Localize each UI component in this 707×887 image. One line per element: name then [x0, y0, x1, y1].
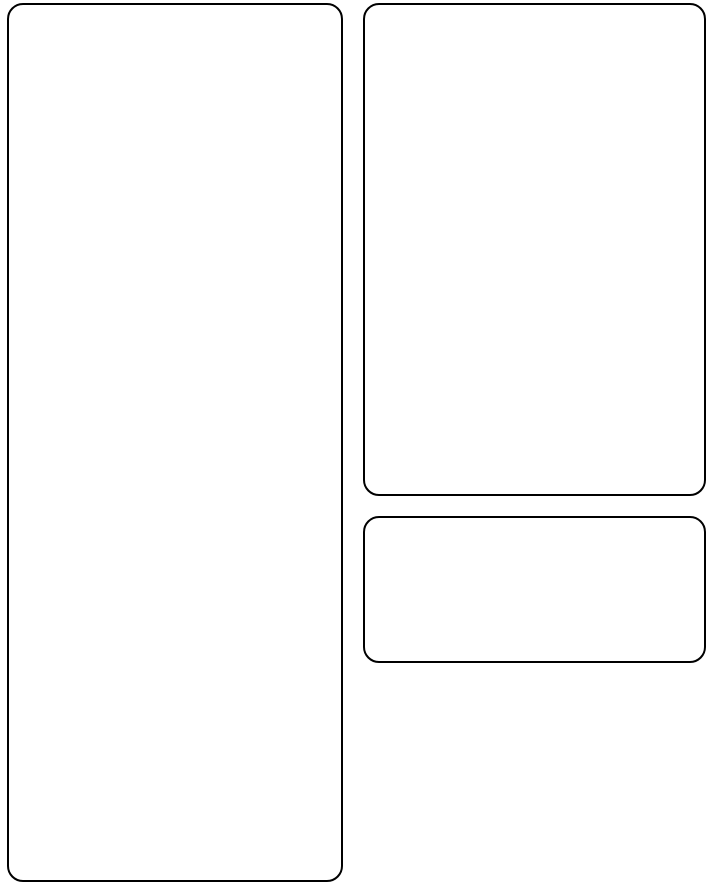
wireframe-canvas: { "canvas": { "background": "#ffffff", "…: [0, 0, 707, 887]
left-tall-rounded-rectangle-label: [9, 5, 341, 880]
bottom-right-small-rounded-rectangle-label: [365, 518, 704, 661]
bottom-right-small-rounded-rectangle: [363, 516, 706, 663]
left-tall-rounded-rectangle: [7, 3, 343, 882]
top-right-rounded-rectangle: [363, 3, 706, 496]
top-right-rounded-rectangle-label: [365, 5, 704, 494]
